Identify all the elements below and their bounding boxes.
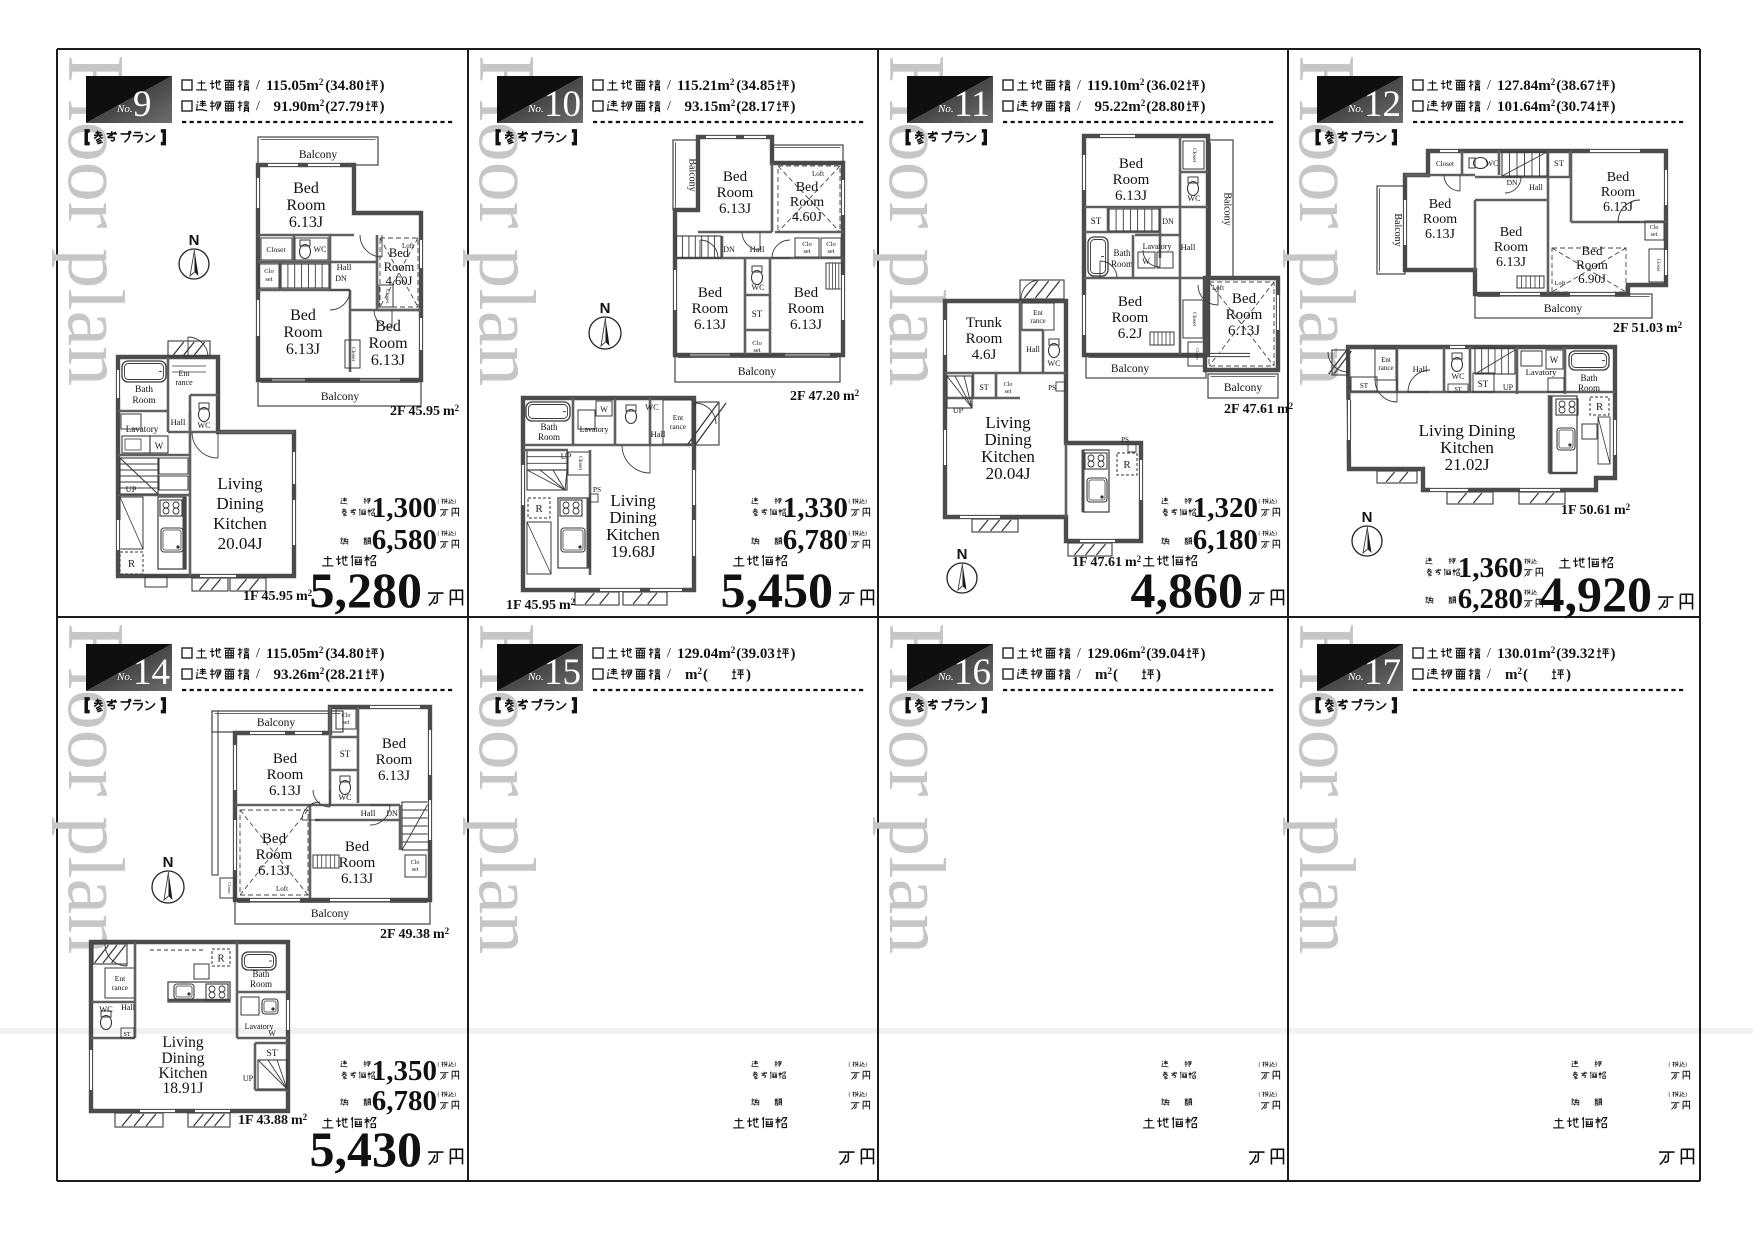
svg-text:(28.21: (28.21	[325, 667, 364, 683]
svg-text:rance: rance	[1030, 317, 1045, 325]
svg-text:Ent: Ent	[673, 413, 684, 422]
svg-text:4,860: 4,860	[1131, 562, 1244, 618]
svg-text:set: set	[1005, 389, 1012, 395]
svg-text:(28.80: (28.80	[1146, 99, 1185, 115]
svg-text:(: (	[438, 498, 440, 505]
svg-text:rance: rance	[112, 983, 129, 992]
svg-text:set: set	[265, 276, 272, 283]
svg-text:W: W	[155, 441, 164, 451]
svg-text:ST: ST	[752, 309, 763, 319]
svg-text:WC: WC	[1188, 194, 1201, 203]
svg-text:PS: PS	[593, 485, 601, 494]
svg-text:No.: No.	[937, 103, 954, 115]
svg-text:1F 47.61: 1F 47.61	[1072, 555, 1122, 570]
svg-text:Loft: Loft	[402, 242, 414, 250]
svg-text:/: /	[667, 78, 671, 93]
svg-text:Hall: Hall	[1181, 242, 1196, 252]
svg-text:set: set	[827, 248, 834, 255]
svg-text:2F 45.95: 2F 45.95	[390, 404, 440, 419]
svg-text:4.6J: 4.6J	[972, 347, 997, 363]
svg-text:Dining: Dining	[216, 494, 264, 513]
svg-text:Hall: Hall	[651, 429, 666, 439]
svg-text:set: set	[412, 867, 419, 873]
svg-text:18.91J: 18.91J	[163, 1080, 204, 1097]
svg-text:Clo: Clo	[826, 241, 835, 248]
svg-text:Room: Room	[1423, 212, 1457, 227]
svg-text:No.: No.	[116, 671, 133, 683]
svg-text:4.60J: 4.60J	[792, 210, 823, 225]
svg-text:Balcony: Balcony	[1222, 192, 1233, 225]
svg-text:Balcony: Balcony	[257, 717, 296, 729]
svg-text:Room: Room	[1226, 307, 1263, 323]
svg-text:ST: ST	[1360, 382, 1369, 390]
svg-text:6.13J: 6.13J	[1496, 255, 1527, 270]
svg-text:No.: No.	[527, 671, 544, 683]
svg-text:): )	[865, 1061, 867, 1068]
svg-text:Bed: Bed	[382, 736, 407, 752]
svg-text:91.90m2: 91.90m2	[274, 98, 325, 115]
svg-text:10: 10	[544, 84, 581, 125]
svg-text:): )	[865, 498, 867, 505]
svg-text:/: /	[1487, 646, 1491, 661]
svg-text:2F 47.20: 2F 47.20	[790, 389, 840, 404]
svg-text:20.04J: 20.04J	[218, 534, 263, 553]
svg-text:DN: DN	[335, 274, 347, 283]
svg-text:WC: WC	[645, 402, 659, 412]
svg-text:Closet: Closet	[577, 456, 583, 471]
svg-text:1,300: 1,300	[372, 492, 437, 524]
svg-text:WC: WC	[99, 1004, 113, 1014]
svg-text:Living: Living	[162, 1034, 204, 1051]
svg-text:Bed: Bed	[1500, 225, 1523, 240]
svg-text:Room: Room	[1113, 172, 1150, 188]
svg-text:115.05m2: 115.05m2	[266, 645, 324, 662]
svg-text:(: (	[1669, 1061, 1671, 1068]
svg-text:UP: UP	[126, 484, 137, 494]
svg-text:6.13J: 6.13J	[790, 317, 822, 333]
svg-text:Ent: Ent	[1033, 309, 1043, 317]
svg-text:): )	[454, 1091, 456, 1098]
svg-text:): )	[1275, 530, 1277, 537]
svg-text:(: (	[1669, 1091, 1671, 1098]
svg-text:Bed: Bed	[375, 318, 401, 335]
svg-text:set: set	[1651, 232, 1658, 238]
svg-text:N: N	[189, 232, 200, 249]
svg-text:W: W	[1142, 257, 1150, 266]
svg-text:/: /	[1487, 667, 1491, 682]
svg-text:Room: Room	[376, 752, 413, 768]
svg-text:5,280: 5,280	[310, 562, 423, 618]
svg-text:/: /	[667, 667, 671, 682]
svg-text:6.2J: 6.2J	[1118, 326, 1143, 342]
svg-text:Bed: Bed	[273, 751, 298, 767]
svg-text:6.13J: 6.13J	[341, 871, 373, 887]
svg-text:119.10m2: 119.10m2	[1087, 77, 1145, 94]
svg-text:/: /	[667, 99, 671, 114]
svg-text:1F 50.61: 1F 50.61	[1561, 503, 1611, 518]
svg-text:DN: DN	[1507, 178, 1518, 187]
svg-text:Clo: Clo	[1650, 225, 1659, 231]
svg-text:1,320: 1,320	[1193, 492, 1258, 524]
svg-text:Closet: Closet	[266, 245, 286, 254]
svg-text:): )	[1610, 78, 1615, 94]
svg-text:UP: UP	[243, 1074, 254, 1083]
svg-text:Bed: Bed	[262, 831, 287, 847]
svg-text:N: N	[600, 300, 611, 317]
svg-text:(: (	[1259, 1091, 1261, 1098]
svg-text:set: set	[343, 720, 350, 726]
svg-text:Bath: Bath	[253, 969, 270, 979]
svg-text:ST: ST	[1478, 379, 1489, 389]
svg-text:1F 45.95: 1F 45.95	[506, 598, 556, 613]
svg-text:6.13J: 6.13J	[1115, 188, 1147, 204]
svg-text:Closet: Closet	[1655, 259, 1660, 272]
svg-text:Clo: Clo	[1004, 382, 1013, 388]
svg-text:6.13J: 6.13J	[719, 201, 751, 217]
svg-text:Room: Room	[132, 396, 156, 406]
svg-text:): )	[790, 78, 795, 94]
svg-text:Bed: Bed	[1119, 156, 1144, 172]
svg-text:W: W	[268, 1029, 276, 1038]
svg-text:W: W	[1550, 355, 1559, 365]
svg-text:R: R	[535, 503, 543, 515]
svg-text:(34.80: (34.80	[325, 78, 364, 94]
svg-text:6.13J: 6.13J	[1603, 200, 1634, 215]
svg-text:19.68J: 19.68J	[611, 542, 656, 561]
svg-text:Balcony: Balcony	[311, 908, 350, 920]
svg-text:Balcony: Balcony	[1392, 213, 1403, 246]
svg-text:Lavatory: Lavatory	[1143, 242, 1172, 251]
svg-text:Bath: Bath	[541, 422, 558, 432]
svg-text:(39.32: (39.32	[1556, 646, 1595, 662]
svg-text:): )	[746, 667, 751, 683]
svg-text:): )	[1275, 498, 1277, 505]
svg-text:17: 17	[1364, 652, 1401, 693]
svg-text:Closet: Closet	[350, 347, 356, 362]
svg-text:6,180: 6,180	[1193, 524, 1258, 556]
svg-text:Ent: Ent	[178, 369, 190, 378]
svg-text:): )	[865, 530, 867, 537]
svg-text:Room: Room	[368, 335, 408, 352]
svg-text:Lavatory: Lavatory	[580, 425, 609, 434]
svg-text:129.06m2: 129.06m2	[1087, 645, 1146, 662]
svg-text:): )	[379, 99, 384, 115]
svg-text:1,360: 1,360	[1458, 552, 1523, 584]
svg-text:Balcony: Balcony	[299, 149, 338, 161]
svg-text:Room: Room	[1494, 240, 1528, 255]
svg-text:/: /	[1487, 99, 1491, 114]
svg-text:Bed: Bed	[1607, 170, 1630, 185]
svg-text:WC: WC	[339, 793, 352, 802]
svg-text:/: /	[1077, 99, 1081, 114]
svg-text:No.: No.	[1347, 103, 1364, 115]
svg-text:Ent: Ent	[115, 974, 126, 983]
svg-text:Hall: Hall	[337, 262, 352, 272]
svg-text:(: (	[849, 1091, 851, 1098]
svg-text:Closet: Closet	[1191, 148, 1197, 163]
svg-text:1,330: 1,330	[783, 492, 848, 524]
svg-text:1F 45.95: 1F 45.95	[243, 589, 293, 604]
svg-text:PS: PS	[1048, 384, 1056, 392]
svg-text:Hall: Hall	[171, 417, 186, 427]
svg-text:(27.79: (27.79	[325, 99, 364, 115]
svg-text:16: 16	[954, 652, 991, 693]
svg-text:5,450: 5,450	[721, 562, 834, 618]
svg-text:Room: Room	[1578, 383, 1600, 393]
svg-text:Bath: Bath	[135, 385, 153, 395]
svg-text:DN: DN	[723, 245, 735, 254]
svg-text:Bed: Bed	[290, 307, 316, 324]
svg-text:): )	[1200, 646, 1205, 662]
svg-text:130.01m2: 130.01m2	[1497, 645, 1556, 662]
svg-text:R: R	[128, 558, 136, 570]
svg-text:6.90J: 6.90J	[1578, 271, 1606, 286]
svg-text:9: 9	[133, 84, 152, 125]
svg-text:Room: Room	[692, 301, 729, 317]
svg-text:Room: Room	[538, 432, 560, 442]
svg-text:93.15m2: 93.15m2	[685, 98, 736, 115]
svg-text:Loft: Loft	[1554, 280, 1565, 287]
svg-text:DN: DN	[1162, 217, 1174, 226]
svg-text:Closet: Closet	[1191, 312, 1197, 327]
svg-text:4.60J: 4.60J	[386, 274, 413, 288]
svg-text:Hall: Hall	[1529, 183, 1544, 192]
svg-text:Clo: Clo	[752, 340, 761, 347]
svg-text:(34.85: (34.85	[736, 78, 775, 94]
svg-text:(38.67: (38.67	[1556, 78, 1595, 94]
svg-text:/: /	[1487, 78, 1491, 93]
svg-text:Living: Living	[217, 474, 263, 493]
svg-text:4,920: 4,920	[1540, 566, 1653, 622]
svg-text:127.84m2: 127.84m2	[1497, 77, 1556, 94]
svg-text:12: 12	[1364, 84, 1401, 125]
svg-text:101.64m2: 101.64m2	[1497, 98, 1556, 115]
svg-text:Kitchen: Kitchen	[213, 514, 267, 533]
svg-text:(: (	[1259, 1061, 1261, 1068]
svg-text:): )	[379, 667, 384, 683]
svg-text:Room: Room	[256, 847, 293, 863]
svg-text:Balcony: Balcony	[1544, 303, 1583, 315]
svg-text:(34.80: (34.80	[325, 646, 364, 662]
svg-text:Room: Room	[250, 979, 272, 989]
svg-text:R: R	[1596, 401, 1604, 413]
svg-text:Ent: Ent	[1381, 356, 1391, 364]
svg-text:): )	[1200, 99, 1205, 115]
svg-text:Bath: Bath	[1114, 248, 1131, 258]
svg-text:Balcony: Balcony	[321, 391, 360, 403]
svg-text:6.13J: 6.13J	[269, 783, 301, 799]
svg-text:No.: No.	[116, 103, 133, 115]
svg-text:Room: Room	[1601, 185, 1635, 200]
svg-text:Bed: Bed	[1429, 197, 1452, 212]
svg-text:21.02J: 21.02J	[1445, 455, 1490, 474]
svg-text:6.13J: 6.13J	[694, 317, 726, 333]
svg-text:): )	[1566, 667, 1571, 683]
svg-text:): )	[865, 1091, 867, 1098]
svg-text:(39.03: (39.03	[736, 646, 775, 662]
svg-text:20.04J: 20.04J	[986, 464, 1031, 483]
svg-text:6.13J: 6.13J	[371, 352, 405, 369]
svg-text:Lavatory: Lavatory	[1526, 367, 1557, 377]
svg-text:Bed: Bed	[796, 180, 819, 195]
svg-text:(30.74: (30.74	[1556, 99, 1595, 115]
svg-text:6.13J: 6.13J	[1228, 323, 1260, 339]
svg-text:Bed: Bed	[1582, 243, 1603, 258]
svg-text:Bed: Bed	[723, 169, 748, 185]
svg-text:): )	[379, 78, 384, 94]
svg-text:N: N	[957, 546, 968, 563]
svg-text:Clo: Clo	[264, 268, 273, 275]
svg-text:Room: Room	[283, 324, 323, 341]
svg-text:Bed: Bed	[1118, 294, 1143, 310]
svg-text:rance: rance	[175, 378, 193, 387]
svg-text:Closet: Closet	[384, 289, 390, 304]
svg-text:Room: Room	[339, 855, 376, 871]
svg-text:ST: ST	[1554, 158, 1565, 168]
svg-text:No.: No.	[1347, 671, 1364, 683]
svg-text:5,430: 5,430	[310, 1121, 423, 1177]
svg-text:Room: Room	[1111, 259, 1133, 269]
svg-text:(: (	[438, 1061, 440, 1068]
svg-text:ST: ST	[979, 383, 988, 392]
svg-text:129.04m2: 129.04m2	[677, 645, 736, 662]
svg-text:95.22m2: 95.22m2	[1095, 98, 1146, 115]
svg-text:Hall: Hall	[750, 244, 765, 254]
svg-text:Balcony: Balcony	[1111, 363, 1150, 375]
svg-text:ST: ST	[1454, 387, 1461, 393]
svg-text:93.26m2: 93.26m2	[274, 666, 325, 683]
svg-text:No.: No.	[527, 103, 544, 115]
svg-text:Bed: Bed	[345, 839, 370, 855]
svg-text:Balcony: Balcony	[738, 366, 777, 378]
svg-text:set: set	[803, 248, 810, 255]
svg-text:Bed: Bed	[1232, 291, 1257, 307]
svg-text:Room: Room	[788, 301, 825, 317]
svg-text:): )	[1610, 646, 1615, 662]
svg-text:/: /	[256, 667, 260, 682]
svg-text:/: /	[1077, 78, 1081, 93]
svg-text:WC: WC	[1048, 359, 1061, 368]
svg-text:1,350: 1,350	[372, 1055, 437, 1087]
svg-text:(: (	[849, 530, 851, 537]
svg-text:ST: ST	[1091, 216, 1102, 226]
svg-text:1F 43.88: 1F 43.88	[238, 1113, 288, 1128]
svg-text:): )	[790, 646, 795, 662]
svg-text:Clo: Clo	[342, 713, 351, 719]
svg-text:6,580: 6,580	[372, 524, 437, 556]
svg-text:/: /	[256, 646, 260, 661]
svg-text:ST: ST	[266, 1049, 277, 1059]
svg-text:PS: PS	[1121, 436, 1129, 444]
svg-text:115.21m2: 115.21m2	[677, 77, 735, 94]
svg-text:Room: Room	[267, 767, 304, 783]
svg-text:(: (	[1113, 667, 1118, 683]
svg-text:Room: Room	[286, 197, 326, 214]
svg-text:Closet: Closet	[1436, 160, 1454, 168]
svg-text:(: (	[849, 498, 851, 505]
svg-text:): )	[454, 1061, 456, 1068]
svg-text:(: (	[1523, 667, 1528, 683]
svg-text:Clo: Clo	[411, 860, 420, 866]
svg-text:Hall: Hall	[361, 808, 376, 818]
svg-text:rance: rance	[670, 422, 687, 431]
svg-text:ST: ST	[123, 1032, 130, 1038]
svg-text:/: /	[256, 99, 260, 114]
svg-text:): )	[1156, 667, 1161, 683]
svg-text:/: /	[256, 78, 260, 93]
svg-text:6,280: 6,280	[1458, 583, 1523, 615]
svg-text:Closet: Closet	[1195, 348, 1200, 360]
svg-text:2F 47.61: 2F 47.61	[1224, 402, 1274, 417]
svg-text:Balcony: Balcony	[1224, 382, 1263, 394]
svg-text:): )	[454, 498, 456, 505]
svg-text:W: W	[600, 405, 608, 414]
svg-text:ST: ST	[340, 749, 351, 759]
svg-text:(: (	[1259, 530, 1261, 537]
svg-text:Bed: Bed	[794, 285, 819, 301]
svg-text:(39.04: (39.04	[1146, 646, 1185, 662]
svg-text:WC: WC	[1452, 372, 1465, 381]
svg-text:6,780: 6,780	[372, 1085, 437, 1117]
svg-text:6.13J: 6.13J	[378, 768, 410, 784]
svg-text:set: set	[753, 347, 760, 354]
svg-text:6,780: 6,780	[783, 524, 848, 556]
svg-text:6.13J: 6.13J	[286, 341, 320, 358]
svg-text:15: 15	[544, 652, 581, 693]
svg-text:Room: Room	[1112, 310, 1149, 326]
svg-text:N: N	[1362, 509, 1373, 526]
svg-text:2F 51.03: 2F 51.03	[1613, 321, 1663, 336]
svg-text:(: (	[703, 667, 708, 683]
svg-text:): )	[1685, 1091, 1687, 1098]
svg-text:WC: WC	[198, 421, 211, 430]
svg-text:Loft: Loft	[812, 170, 824, 178]
svg-text:Room: Room	[1576, 257, 1608, 272]
svg-text:R: R	[217, 953, 225, 965]
svg-text:(: (	[1259, 498, 1261, 505]
svg-text:(: (	[438, 1091, 440, 1098]
svg-text:115.05m2: 115.05m2	[266, 77, 324, 94]
svg-text:UP: UP	[953, 406, 964, 415]
svg-text:Hall: Hall	[121, 1003, 136, 1012]
svg-text:/: /	[667, 646, 671, 661]
svg-text:): )	[790, 99, 795, 115]
svg-text:Room: Room	[717, 185, 754, 201]
svg-text:(36.02: (36.02	[1146, 78, 1185, 94]
svg-text:WC: WC	[752, 283, 765, 292]
svg-text:WC: WC	[1486, 159, 1499, 168]
svg-text:Closet: Closet	[227, 882, 232, 894]
svg-text:(28.17: (28.17	[736, 99, 775, 115]
svg-text:R: R	[1123, 459, 1131, 471]
svg-text:6.13J: 6.13J	[1425, 227, 1456, 242]
svg-text:WC: WC	[314, 245, 327, 254]
svg-text:Bath: Bath	[1581, 373, 1598, 383]
svg-text:): )	[1200, 78, 1205, 94]
svg-text:Loft: Loft	[276, 885, 288, 893]
svg-text:Hall: Hall	[1026, 345, 1041, 354]
svg-text:Room: Room	[384, 260, 415, 274]
svg-text:Clo: Clo	[802, 241, 811, 248]
svg-text:Bed: Bed	[698, 285, 723, 301]
svg-text:No.: No.	[937, 671, 954, 683]
svg-text:): )	[454, 530, 456, 537]
svg-text:UP: UP	[1503, 383, 1514, 392]
svg-text:N: N	[163, 854, 174, 871]
svg-text:(: (	[438, 530, 440, 537]
svg-text:): )	[379, 646, 384, 662]
svg-text:/: /	[1077, 646, 1081, 661]
